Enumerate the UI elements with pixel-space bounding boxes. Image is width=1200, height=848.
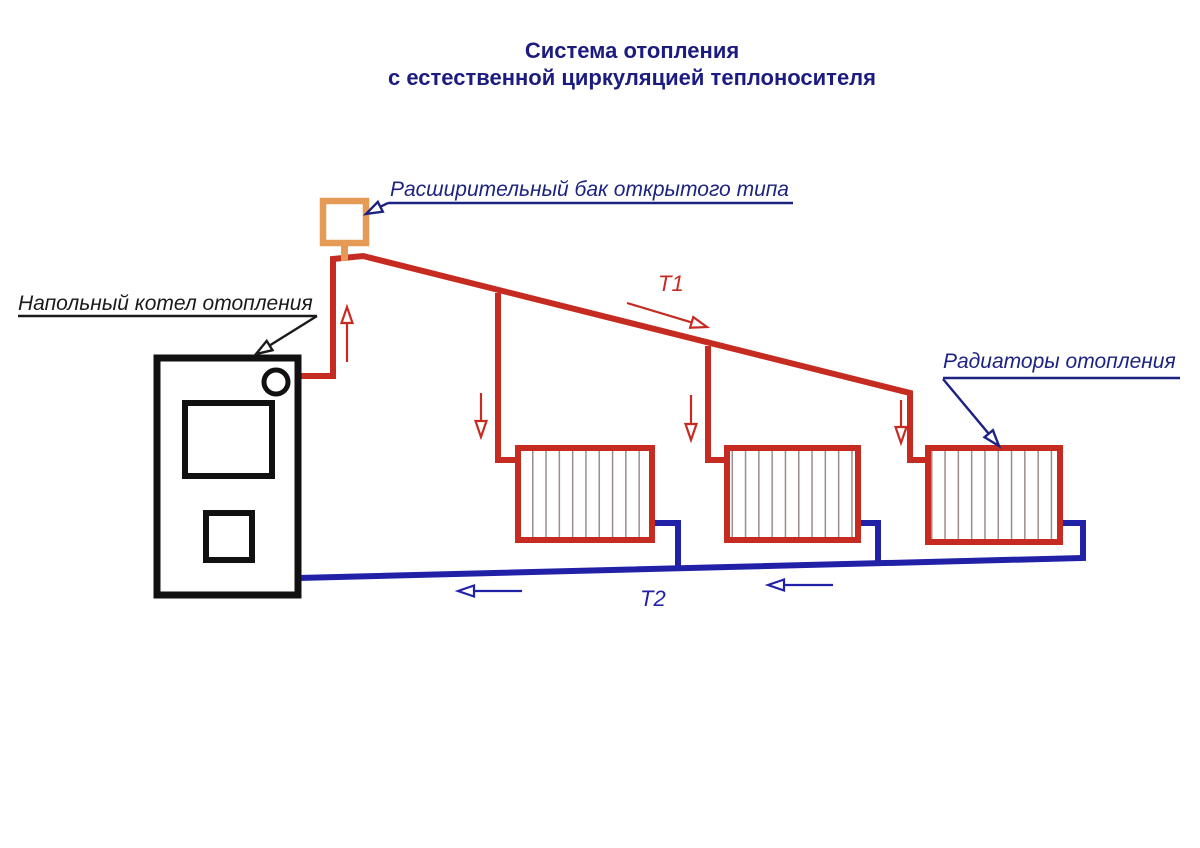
callout-boiler-leader [270,316,317,346]
callout-radiators-label: Радиаторы отопления [943,350,1176,373]
title-line-2: с естественной циркуляцией теплоносителя [388,65,876,90]
supply-pipe [297,256,929,460]
expansion-tank [323,201,366,261]
flow-arrow-t1-icon [627,303,692,322]
flow-arrow-down-3-head-icon [896,427,907,443]
title-line-1: Система отопления [525,38,739,63]
radiator-3-fins [931,451,1057,539]
supply-line-label: T1 [658,271,684,296]
flow-arrow-return-2-head-icon [768,580,784,591]
radiator-1 [518,448,652,540]
return-branch-radiator-1 [652,523,678,569]
supply-branch-radiator-1 [498,293,521,460]
radiator-2 [727,448,858,540]
callout-expansion-tank-label: Расширительный бак открытого типа [390,178,789,201]
boiler-window [185,403,272,476]
flow-arrow-up-head-icon [342,307,353,323]
flow-arrow-return-1-head-icon [458,586,474,597]
radiator-3 [928,448,1060,542]
expansion-tank-body [323,201,366,243]
boiler-gauge-icon [264,370,288,394]
flow-arrow-t1-head-icon [690,317,707,328]
callout-boiler: Напольный котел отопления [18,292,317,354]
callout-expansion-tank: Расширительный бак открытого типа [366,178,793,214]
diagram-svg: Система отопления с естественной циркуля… [0,0,1200,848]
radiator-1-fins [521,451,649,537]
boiler-burner-door [206,513,252,560]
radiator-2-fins [730,451,855,537]
heating-system-diagram: Система отопления с естественной циркуля… [0,0,1200,848]
callout-radiators-leader [943,379,989,434]
supply-main-line [297,256,929,460]
callout-expansion-tank-leader [380,203,388,207]
supply-branch-radiator-2 [708,346,730,460]
return-line-label: T2 [640,586,666,611]
boiler [157,358,298,595]
flow-arrow-down-1-head-icon [476,421,487,437]
diagram-title: Система отопления с естественной циркуля… [388,38,876,90]
callout-radiators: Радиаторы отопления [943,350,1180,446]
flow-arrow-down-2-head-icon [686,424,697,440]
callout-boiler-label: Напольный котел отопления [18,292,313,315]
callout-boiler-arrowhead-icon [256,341,273,354]
